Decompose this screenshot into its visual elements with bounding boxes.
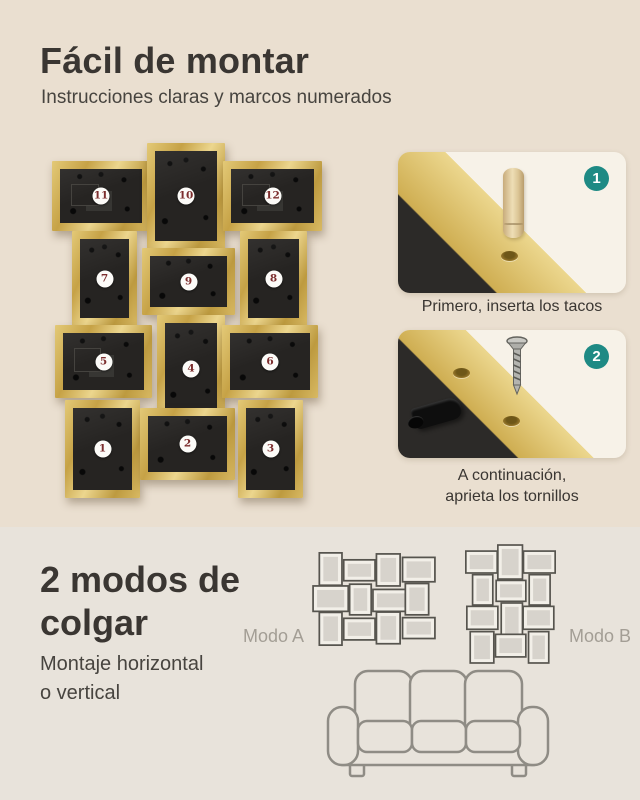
frame-back: 7 — [72, 231, 137, 326]
hanging-section-title: 2 modos de colgar — [40, 558, 240, 644]
frame-number-badge: 6 — [262, 353, 279, 370]
frame-back: 5 — [55, 325, 152, 398]
mode-a-label: Modo A — [243, 626, 304, 647]
hanging-subtitle-line: o vertical — [40, 682, 120, 704]
frame-back-panel: 5 — [63, 333, 144, 390]
frame-back: 8 — [240, 231, 307, 326]
mode-b-vertical-diagram — [465, 544, 556, 664]
hanging-subtitle-line: Montaje horizontal — [40, 653, 203, 675]
anchor-hole-icon — [501, 251, 518, 261]
frame-back-panel: 3 — [246, 408, 295, 490]
hanging-title-line: colgar — [40, 602, 148, 643]
numbered-frames-photo: 111012798546123 — [52, 143, 322, 498]
mode-b-label: Modo B — [569, 626, 631, 647]
frame-back-panel: 12 — [231, 169, 314, 223]
frame-back: 10 — [147, 143, 225, 249]
frame-back-panel: 9 — [150, 256, 227, 307]
step-2-caption-line: A continuación, — [458, 467, 567, 484]
frame-back-panel: 4 — [165, 323, 217, 415]
frame-clip-icon — [410, 395, 464, 430]
hanging-section-subtitle: Montaje horizontal o vertical — [40, 650, 203, 708]
frame-number-badge: 8 — [265, 270, 282, 287]
step-1-caption: Primero, inserta los tacos — [398, 298, 626, 316]
frame-back-panel: 11 — [60, 169, 142, 223]
frame-back-panel: 7 — [80, 239, 129, 318]
frame-number-badge: 12 — [264, 188, 281, 205]
screw-icon — [505, 335, 529, 397]
hanging-title-line: 2 modos de — [40, 559, 240, 600]
frame-back: 3 — [238, 400, 303, 498]
frame-number-badge: 5 — [95, 353, 112, 370]
frame-back-panel: 1 — [73, 408, 132, 490]
assembly-infographic-page: Fácil de montar Instrucciones claras y m… — [0, 0, 640, 800]
frame-back: 6 — [222, 325, 318, 398]
screw-hole-icon — [453, 368, 470, 378]
page-subtitle: Instrucciones claras y marcos numerados — [41, 87, 392, 109]
frame-back: 11 — [52, 161, 150, 231]
frame-back: 1 — [65, 400, 140, 498]
frame-number-badge: 10 — [178, 188, 195, 205]
frame-number-badge: 11 — [93, 188, 110, 205]
page-title: Fácil de montar — [40, 40, 309, 82]
frame-back: 4 — [157, 315, 225, 423]
frame-back-panel: 10 — [155, 151, 217, 241]
frame-number-badge: 3 — [262, 441, 279, 458]
wooden-dowel-icon — [503, 168, 524, 238]
frame-back: 12 — [223, 161, 322, 231]
frame-number-badge: 2 — [179, 436, 196, 453]
sofa-outline-illustration — [322, 668, 554, 783]
frame-number-badge: 9 — [180, 273, 197, 290]
frame-back: 2 — [140, 408, 235, 480]
step-1-badge: 1 — [584, 166, 609, 191]
screw-hole-icon — [503, 416, 520, 426]
step-2-badge: 2 — [584, 344, 609, 369]
frame-back: 9 — [142, 248, 235, 315]
step-2-photo: 2 — [398, 330, 626, 458]
step-2-caption: A continuación, aprieta los tornillos — [398, 465, 626, 507]
frame-number-badge: 4 — [183, 361, 200, 378]
frame-back-panel: 6 — [230, 333, 310, 390]
step-2-caption-line: aprieta los tornillos — [445, 488, 578, 505]
mode-a-horizontal-diagram — [312, 552, 436, 646]
frame-back-panel: 2 — [148, 416, 227, 472]
frame-back-panel: 8 — [248, 239, 299, 318]
frame-number-badge: 1 — [94, 441, 111, 458]
step-1-photo: 1 — [398, 152, 626, 293]
frame-number-badge: 7 — [96, 270, 113, 287]
